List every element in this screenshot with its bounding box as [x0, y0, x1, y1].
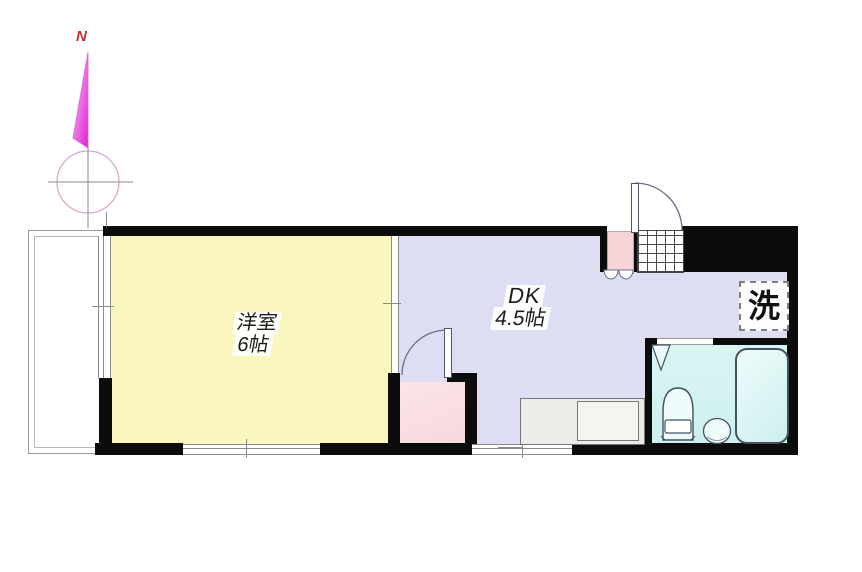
- room-dk-size: 4.5帖: [490, 307, 550, 330]
- closet-door-leaf: [444, 328, 452, 378]
- bath-door-icon: [650, 343, 674, 374]
- closet-wall-left: [388, 373, 400, 453]
- room-western-size: 6帖: [233, 334, 274, 356]
- wall-top-right: [682, 226, 798, 272]
- kitchen-counter: [520, 398, 645, 445]
- north-arrow-icon: [40, 25, 140, 235]
- room-dk-label: DK 4.5帖: [426, 285, 619, 330]
- entry-cabinet: [607, 231, 634, 274]
- room-western-label: 洋室 6帖: [171, 312, 339, 356]
- laundry-space: 洗: [739, 281, 789, 331]
- window-bottom-west-tick: [246, 439, 247, 458]
- wall-left-lower: [99, 378, 112, 455]
- counter-edge-line: [498, 447, 522, 448]
- room-dk-name: DK: [503, 285, 545, 307]
- window-bottom-west: [183, 444, 320, 455]
- balcony-inner-line: [34, 236, 102, 448]
- window-left-tick: [92, 306, 114, 307]
- wall-top-tick: [106, 212, 107, 227]
- entry-tile: [637, 230, 684, 273]
- wall-top: [103, 226, 607, 236]
- bath-wall-top-b: [713, 338, 787, 345]
- laundry-label: 洗: [748, 290, 780, 322]
- entry-wall-left: [600, 230, 607, 272]
- room-western-name: 洋室: [232, 312, 282, 334]
- north-label: N: [76, 28, 87, 45]
- bathtub-icon: [735, 348, 789, 444]
- entry-door-leaf: [631, 183, 639, 233]
- closet: [400, 382, 465, 443]
- closet-wall-right: [465, 373, 477, 453]
- partition-tick: [383, 303, 401, 304]
- toilet-icon: [656, 380, 700, 444]
- kitchen-sink: [577, 401, 639, 441]
- window-left: [98, 236, 111, 378]
- bath-stool-icon: [701, 417, 733, 446]
- floor-plan: N: [0, 0, 862, 572]
